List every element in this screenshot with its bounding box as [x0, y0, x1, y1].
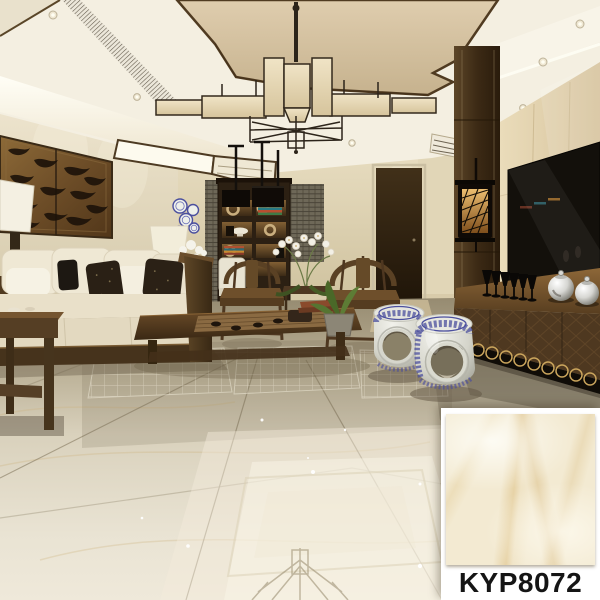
bowl: [232, 228, 248, 235]
sofa: [0, 248, 214, 366]
tile-sample: [446, 414, 595, 565]
doorway: [373, 165, 425, 311]
tile-swatch-card: KYP8072: [441, 408, 600, 600]
showroom-photo: KYP8072: [0, 0, 600, 600]
white-pillow: [6, 268, 50, 296]
product-code-label: KYP8072: [459, 565, 582, 600]
porcelain-drum-stool-front: [416, 315, 475, 388]
